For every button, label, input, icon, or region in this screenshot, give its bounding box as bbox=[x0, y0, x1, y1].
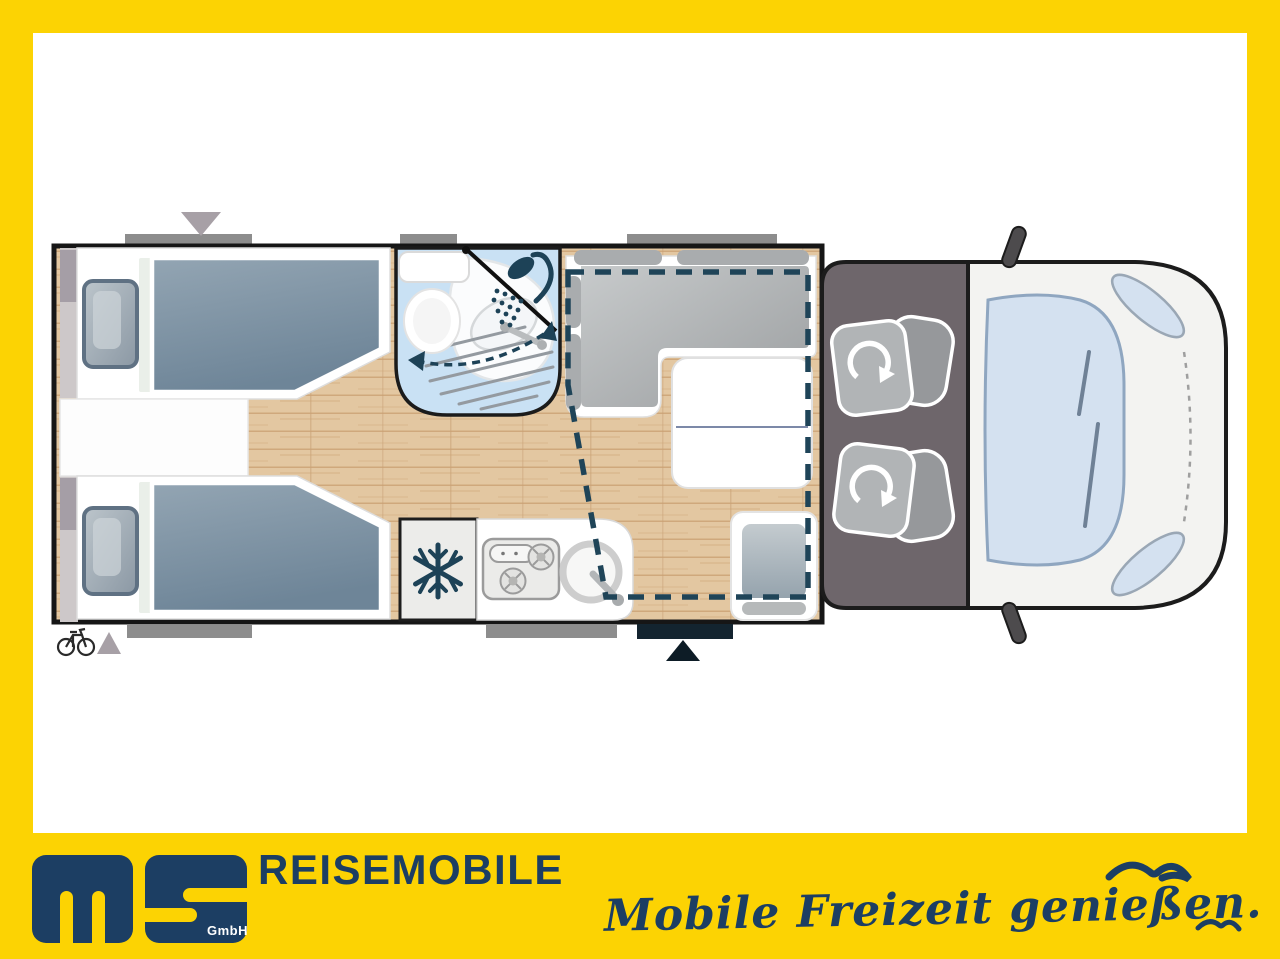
seagull-icon bbox=[1109, 865, 1189, 879]
cooktop bbox=[483, 539, 559, 599]
cab bbox=[822, 225, 1226, 645]
backrest-pill bbox=[566, 334, 581, 410]
window-bar bbox=[486, 625, 617, 638]
entry-door-bar bbox=[637, 624, 733, 639]
cab-bulkhead bbox=[822, 262, 968, 608]
bicycle-icon bbox=[58, 629, 94, 655]
rear-marker-triangle-icon bbox=[97, 632, 121, 654]
nightstand bbox=[60, 399, 248, 476]
passenger-swivel-seat bbox=[832, 442, 957, 545]
logo-slit bbox=[60, 891, 73, 943]
bed-rear-top bbox=[77, 248, 390, 399]
dinette-table bbox=[672, 358, 812, 488]
pillow-highlight bbox=[93, 291, 121, 349]
backrest-pill bbox=[574, 250, 662, 265]
ms-logo-m-block: ms bbox=[32, 855, 133, 943]
floorplan-drawing bbox=[0, 0, 1280, 959]
seat-cushion bbox=[742, 524, 806, 598]
seat-pill bbox=[742, 602, 806, 615]
logo-company-suffix: GmbH bbox=[196, 923, 248, 938]
advert-image: ms GmbH REISEMOBILE Mobile Freizeit geni… bbox=[0, 0, 1280, 959]
rear-marker-triangle-icon bbox=[181, 212, 221, 236]
window-bar bbox=[127, 625, 252, 638]
pillow-highlight bbox=[93, 518, 121, 576]
windshield bbox=[985, 295, 1124, 565]
side-seat bbox=[731, 512, 817, 620]
backrest-pill bbox=[677, 250, 809, 265]
driver-swivel-seat bbox=[830, 314, 957, 418]
logo-slit bbox=[92, 891, 105, 943]
bathroom bbox=[396, 246, 560, 415]
entry-arrow-icon bbox=[666, 640, 700, 661]
kitchen bbox=[400, 519, 633, 620]
entry-door bbox=[637, 624, 733, 661]
logo-slit bbox=[145, 908, 197, 922]
logo-slit bbox=[183, 888, 247, 902]
wordmark: REISEMOBILE bbox=[258, 846, 564, 894]
